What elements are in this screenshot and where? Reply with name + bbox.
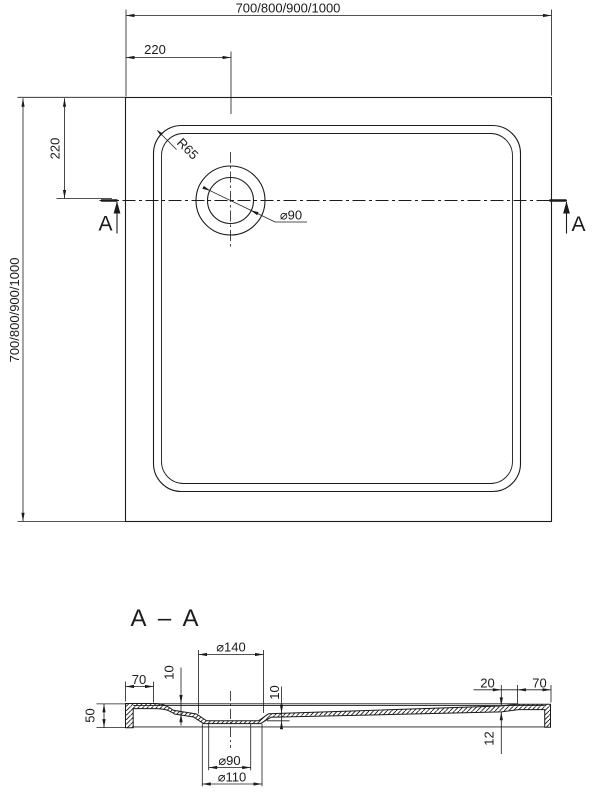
arrow-icon <box>543 14 552 17</box>
section-view: A – A ⌀140 70 <box>82 605 551 786</box>
drain-diameter-label: ⌀90 <box>280 208 302 223</box>
section-dim-edge-thickness: 12 <box>481 690 502 754</box>
plan-dim-width: 700/800/900/1000 <box>126 1 552 97</box>
arrow-icon <box>63 98 66 107</box>
plan-dim-height: 700/800/900/1000 <box>7 97 125 521</box>
plan-dim-drain-offset-top: 220 <box>126 42 231 114</box>
plan-rim-inner-line <box>162 134 513 484</box>
section-dim-drain-hole: ⌀90 <box>209 724 251 771</box>
overall-height-label: 50 <box>82 708 97 722</box>
cut-arrow-left-icon <box>114 201 121 213</box>
section-dim-overall-height: 50 <box>82 704 126 728</box>
recess-top-diameter-label: ⌀140 <box>216 640 246 655</box>
drain-offset-left-label: 220 <box>47 138 62 160</box>
arrow-icon <box>500 697 503 706</box>
arrow-icon <box>21 98 24 107</box>
left-flange-width-label: 70 <box>132 672 146 687</box>
left-step-height-label: 10 <box>161 665 176 679</box>
arrow-icon <box>199 653 208 656</box>
right-flange-width-label: 70 <box>532 675 546 690</box>
arrow-icon <box>209 766 218 769</box>
section-dim-recess-depth: 10 <box>267 685 290 729</box>
plan-width-label: 700/800/900/1000 <box>236 1 341 16</box>
drain-offset-top-label: 220 <box>144 42 166 57</box>
section-shell <box>126 704 551 728</box>
arrow-icon <box>254 782 263 785</box>
arrow-icon <box>179 695 182 704</box>
section-dim-left-flange: 70 <box>126 672 154 703</box>
arrow-icon <box>280 721 283 730</box>
arrow-icon <box>250 210 258 215</box>
arrow-icon <box>21 513 24 522</box>
plan-rim-outer-line <box>154 126 521 492</box>
section-marker-right-label: A <box>571 213 585 236</box>
technical-drawing-page: A A 700/800/900/1000 220 700/8 <box>0 0 609 792</box>
plan-dim-drain-offset-left: 220 <box>47 98 112 198</box>
arrow-icon <box>202 186 210 191</box>
arrow-icon <box>223 56 232 59</box>
right-edge-thickness-label: 12 <box>481 731 496 745</box>
section-dim-right-flange: 70 <box>518 675 552 702</box>
corner-radius-label: R65 <box>174 135 201 162</box>
plan-view: A A 700/800/900/1000 220 700/8 <box>7 1 586 522</box>
recess-bottom-diameter-label: ⌀110 <box>218 769 247 784</box>
arrow-icon <box>280 705 283 714</box>
arrow-icon <box>126 56 135 59</box>
section-dim-right-step: 20 <box>474 675 518 704</box>
section-title: A – A <box>130 605 201 632</box>
plan-drain-diameter-callout: ⌀90 <box>202 186 307 223</box>
section-dim-recess-top: ⌀140 <box>199 640 264 714</box>
drain-hole-diameter-label: ⌀90 <box>218 753 240 768</box>
shower-tray-technical-drawing: A A 700/800/900/1000 220 700/8 <box>0 0 609 792</box>
arrow-icon <box>102 704 105 713</box>
arrow-icon <box>126 14 135 17</box>
section-marker-left-label: A <box>98 213 112 236</box>
cut-arrow-right-icon <box>563 201 570 213</box>
arrow-icon <box>518 688 527 691</box>
plan-outer-edge <box>126 98 552 522</box>
arrow-icon <box>202 782 211 785</box>
right-step-width-label: 20 <box>480 675 494 690</box>
arrow-icon <box>102 719 105 728</box>
recess-depth-label: 10 <box>267 685 282 699</box>
arrow-icon <box>63 190 66 199</box>
plan-height-label: 700/800/900/1000 <box>7 258 22 363</box>
arrow-icon <box>145 685 154 688</box>
arrow-icon <box>255 653 264 656</box>
arrow-icon <box>500 712 503 721</box>
section-dim-left-step: 10 <box>161 665 182 725</box>
